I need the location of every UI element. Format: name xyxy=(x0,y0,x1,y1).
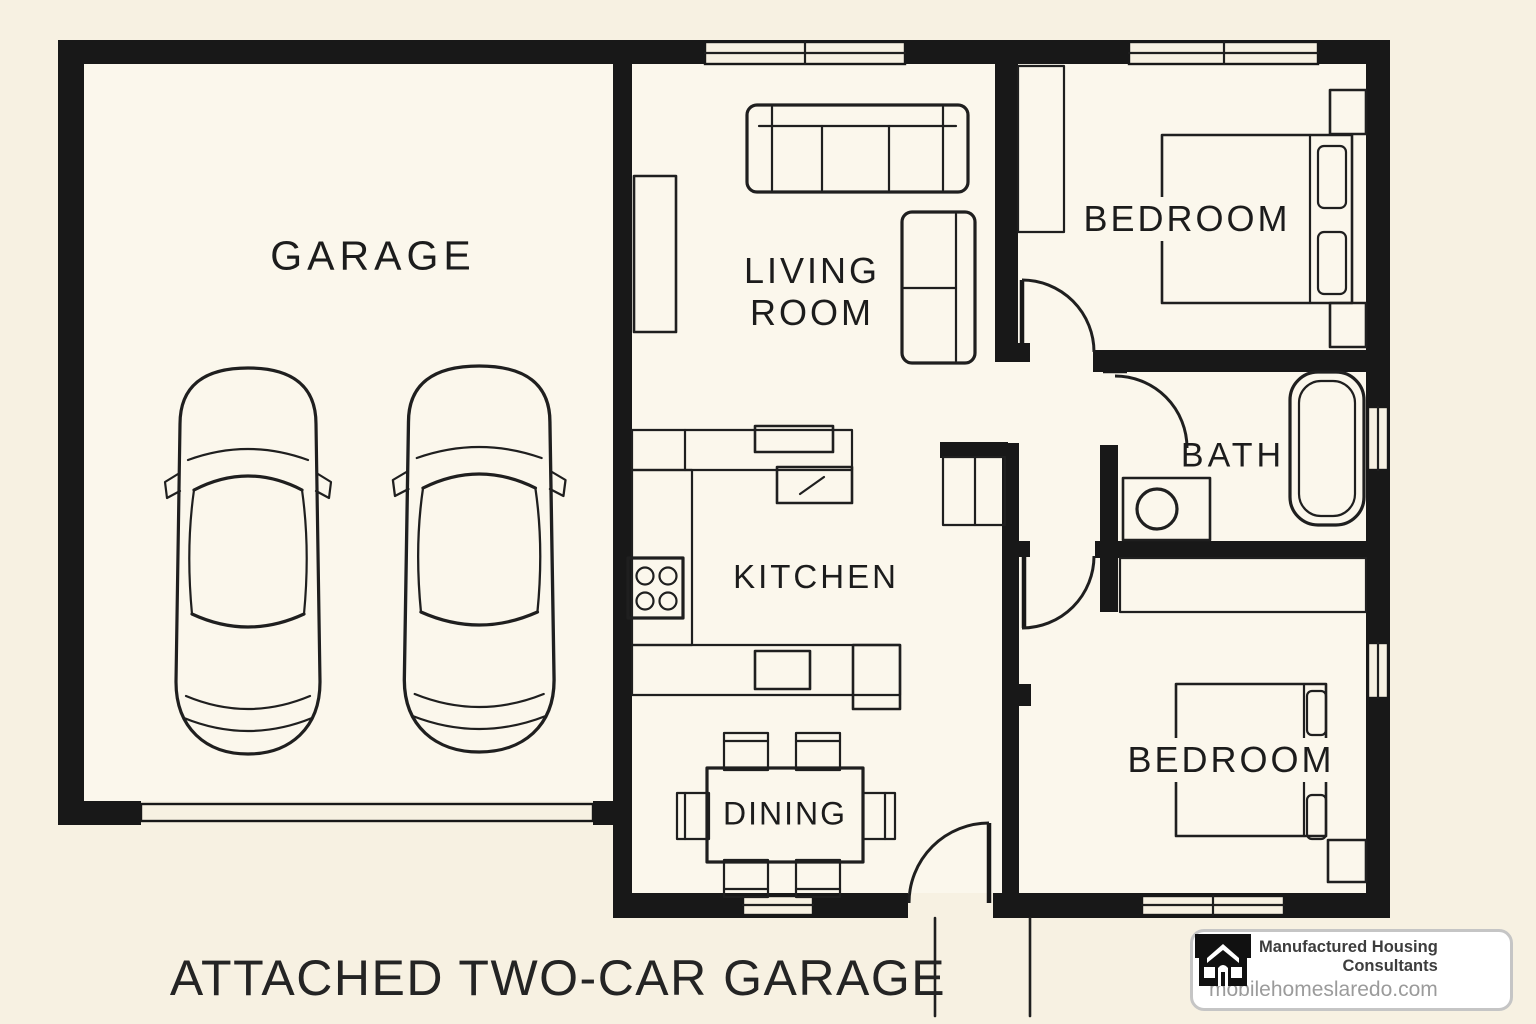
floor-plan: GARAGE LIVING ROOM BEDROOM BATH KITCHEN … xyxy=(0,0,1536,1024)
house-icon xyxy=(1451,942,1498,998)
room-label-living-line2: ROOM xyxy=(744,292,880,334)
watermark-badge: Manufactured Housing Consultants mobileh… xyxy=(1190,929,1513,1011)
floor-plan-drawing xyxy=(0,0,1536,1024)
room-label-bedroom-bottom: BEDROOM xyxy=(1120,738,1341,782)
room-label-living-room: LIVING ROOM xyxy=(744,250,880,334)
room-label-bath: BATH xyxy=(1181,437,1285,476)
room-label-garage: GARAGE xyxy=(270,233,475,280)
room-label-kitchen: KITCHEN xyxy=(733,558,899,596)
plan-caption: ATTACHED TWO-CAR GARAGE xyxy=(170,949,946,1007)
room-label-dining: DINING xyxy=(716,795,854,834)
garage-door xyxy=(141,804,593,821)
room-label-living-line1: LIVING xyxy=(744,250,880,292)
entry-walkway xyxy=(935,918,1030,1016)
room-label-bedroom-top: BEDROOM xyxy=(1076,197,1297,241)
